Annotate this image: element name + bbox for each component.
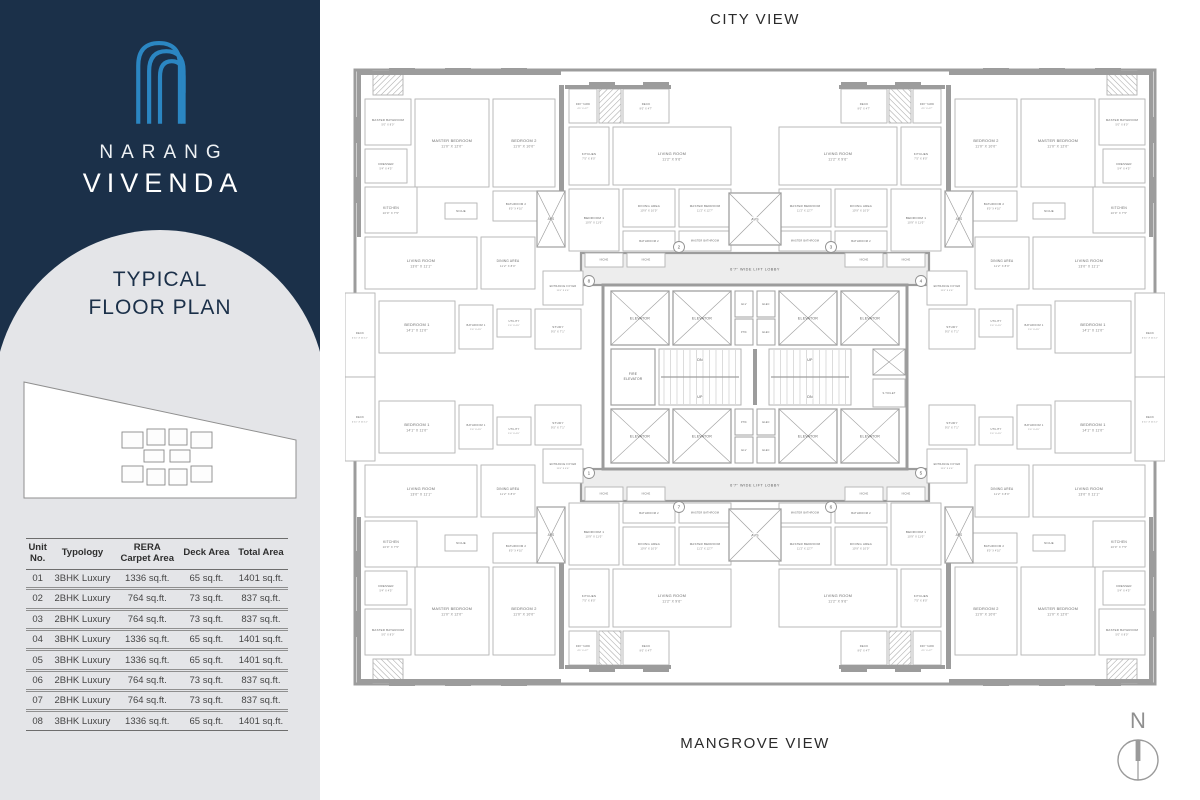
- table-cell: 837 sq.ft.: [234, 589, 288, 609]
- table-cell: 1401 sq.ft.: [234, 629, 288, 649]
- fire-elevator-label: FIRE: [629, 372, 638, 376]
- room-dims: 5'0" X 4'0": [1028, 429, 1040, 431]
- room-label: BEDROOM 1: [906, 530, 926, 534]
- room-dims: 11'0" X 4'6": [941, 468, 954, 470]
- room-label: MASTER BEDROOM: [790, 542, 821, 546]
- room-label: BATHROOM 2: [851, 239, 871, 243]
- wall: [354, 611, 361, 637]
- room-dims: 11'2" X 9'6": [828, 158, 848, 162]
- table-cell: 1401 sq.ft.: [234, 569, 288, 588]
- room-dims: 11'2" X 9'6": [828, 600, 848, 604]
- lift-lobby-label: 6'7" WIDE LIFT LOBBY: [730, 483, 780, 487]
- unit-number: 2: [678, 245, 681, 250]
- room-label: UTILITY: [990, 427, 1001, 431]
- room-dims: 11'2" X 8'0": [500, 264, 516, 268]
- stair-direction: DN: [697, 358, 703, 362]
- table-row: 062BHK Luxury764 sq.ft.73 sq.ft.837 sq.f…: [26, 670, 288, 690]
- wall: [354, 117, 361, 143]
- room-dims: 10'9" X 10'0": [640, 209, 657, 213]
- wall: [983, 679, 1009, 686]
- table-cell: 2BHK Luxury: [49, 691, 115, 711]
- room-dims: 9'5" X 7'1": [945, 330, 959, 334]
- room-label: DINING AREA: [991, 259, 1014, 263]
- room-dims: 8'0" X 4'7": [858, 108, 871, 110]
- room-label: BATHROOM 2: [506, 544, 527, 548]
- room-label: BATHROOM 2: [984, 202, 1005, 206]
- room-label: DINING AREA: [991, 487, 1014, 491]
- stair-direction: DN: [807, 395, 813, 399]
- shaft-label: ELV: [741, 449, 746, 452]
- elevator-label: ELEVATOR: [630, 316, 650, 320]
- room-dims: 5'0" X 8'0": [381, 634, 394, 637]
- room-label: KITCHEN: [582, 594, 597, 598]
- page: NARANG VIVENDA TYPICAL FLOOR PLAN: [0, 0, 1200, 800]
- room-dims: 5'4" X 4'5": [379, 590, 392, 593]
- avs-label: AVS: [751, 217, 759, 221]
- room-label: DECK: [642, 102, 651, 106]
- room-label: DINING AREA: [850, 204, 873, 208]
- table-cell: 3BHK Luxury: [49, 629, 115, 649]
- room-label: MASTER BATHROOM: [1106, 118, 1139, 122]
- wall: [589, 82, 615, 89]
- unit-number: 4: [920, 279, 923, 284]
- room-label: NICHE: [600, 259, 609, 262]
- table-cell: 1336 sq.ft.: [116, 569, 179, 588]
- wall: [445, 679, 471, 686]
- room-label: NICHE: [1044, 209, 1054, 213]
- room-label: ENTRANCE FOYER: [934, 284, 961, 288]
- elevator-label: ELEVATOR: [860, 434, 880, 438]
- table-cell: 65 sq.ft.: [179, 650, 234, 670]
- table-row: 022BHK Luxury764 sq.ft.73 sq.ft.837 sq.f…: [26, 589, 288, 609]
- wall: [895, 82, 921, 89]
- room-label: DINING AREA: [638, 204, 661, 208]
- wall: [895, 665, 921, 672]
- room-label: KITCHEN: [383, 206, 399, 210]
- room-label: MASTER BEDROOM: [690, 542, 721, 546]
- room-label: DRY YARD: [576, 645, 590, 648]
- room-label: LIVING ROOM: [407, 486, 435, 491]
- room-label: AVS: [548, 217, 555, 221]
- room-label: DRY YARD: [920, 103, 934, 106]
- room-dims: 13'0" X 11'1": [1078, 265, 1100, 269]
- table-cell: 837 sq.ft.: [234, 670, 288, 690]
- table-cell: 764 sq.ft.: [116, 589, 179, 609]
- table-cell: 73 sq.ft.: [179, 691, 234, 711]
- room-dims: 11'0" X 4'6": [557, 468, 570, 470]
- room-label: NICHE: [902, 493, 911, 496]
- room-label: NICHE: [642, 493, 651, 496]
- wall: [389, 679, 415, 686]
- room-label: MASTER BATHROOM: [791, 240, 819, 243]
- key-plan: [18, 374, 303, 514]
- room-label: UTILITY: [508, 319, 519, 323]
- room-label: MASTER BEDROOM: [1038, 138, 1078, 143]
- room-dims: 11'2" X 9'6": [662, 600, 682, 604]
- room-label: DINING AREA: [497, 259, 520, 263]
- room-dims: 11'2" X 12'7": [797, 210, 813, 213]
- room-dims: 13'0" X 11'1": [410, 493, 432, 497]
- room-dims: 5'0" X 4'0": [1028, 329, 1040, 331]
- room-dims: 13'0" X 11'1": [1078, 493, 1100, 497]
- wall: [589, 665, 615, 672]
- room-label: AVS: [956, 533, 963, 537]
- room-dims: 4'11" X 11'11": [1142, 421, 1158, 423]
- table-cell: 3BHK Luxury: [49, 650, 115, 670]
- floor-plan-panel: CITY VIEW MASTER BATHROOM5'0" X 8'0"DRES…: [320, 0, 1200, 800]
- table-cell: 764 sq.ft.: [116, 670, 179, 690]
- room-label: LIVING ROOM: [407, 258, 435, 263]
- table-cell: 1336 sq.ft.: [116, 711, 179, 730]
- shaft-label: ELEC: [762, 421, 769, 424]
- north-indicator: N: [1106, 708, 1170, 789]
- room-dims: 8'0" X 4'7": [640, 108, 653, 110]
- room-dims: 10'9" X 11'0": [907, 535, 924, 539]
- wall: [354, 551, 361, 577]
- room-dims: 10'9" X 11'0": [585, 221, 602, 225]
- table-cell: 73 sq.ft.: [179, 589, 234, 609]
- wall: [357, 517, 361, 683]
- shaft-label: PHC: [741, 421, 747, 424]
- room-label: KITCHEN: [1111, 206, 1127, 210]
- table-header-cell: RERACarpet Area: [116, 539, 179, 570]
- wall: [445, 68, 471, 75]
- room-dims: 10'9" X 11'0": [907, 221, 924, 225]
- wall: [946, 85, 951, 191]
- room-dims: 4'5" X 4'7": [577, 108, 588, 110]
- room-dims: 5'4" X 4'5": [1117, 590, 1130, 593]
- wall: [389, 68, 415, 75]
- room-label: DRESSER: [378, 584, 393, 588]
- room-label: DECK: [642, 644, 651, 648]
- room-label: BEDROOM 1: [1080, 422, 1105, 427]
- shaft-label: PHC: [741, 331, 747, 334]
- wall: [643, 82, 669, 89]
- avs-label: AVS: [751, 533, 759, 537]
- room-label: KITCHEN: [914, 152, 929, 156]
- table-row: 032BHK Luxury764 sq.ft.73 sq.ft.837 sq.f…: [26, 609, 288, 629]
- room-label: LIVING ROOM: [658, 151, 686, 156]
- room-label: BATHROOM 1: [1025, 423, 1044, 427]
- wall: [983, 68, 1009, 75]
- room-dims: 11'2" X 12'7": [797, 548, 813, 551]
- room-dims: 11'2" X 9'6": [662, 158, 682, 162]
- brand-name-line2: VIVENDA: [0, 168, 320, 199]
- table-cell: 2BHK Luxury: [49, 670, 115, 690]
- room-dims: 10'0" X 7'5": [1111, 211, 1128, 215]
- room-label: MASTER BEDROOM: [690, 204, 721, 208]
- room-label: LIVING ROOM: [824, 593, 852, 598]
- lift-lobby-label: 6'7" WIDE LIFT LOBBY: [730, 267, 780, 271]
- area-table: UnitNo.TypologyRERACarpet AreaDeck AreaT…: [26, 538, 288, 731]
- stair-direction: UP: [697, 395, 703, 399]
- table-cell: 2BHK Luxury: [49, 589, 115, 609]
- room-label: BEDROOM 1: [1080, 322, 1105, 327]
- unit-number: 6: [830, 505, 833, 510]
- north-arrow-icon: [1114, 734, 1162, 784]
- area-table-head: UnitNo.TypologyRERACarpet AreaDeck AreaT…: [26, 539, 288, 570]
- room-dims: 4'11" X 11'11": [352, 337, 368, 339]
- room-dims: 4'5" X 4'7": [921, 650, 932, 652]
- room-label: DRESSER: [1116, 162, 1131, 166]
- room-label: DINING AREA: [638, 542, 661, 546]
- room-dims: 11'0" X 4'6": [941, 290, 954, 292]
- floor-plan-svg: MASTER BATHROOM5'0" X 8'0"DRESSER5'4" X …: [345, 57, 1165, 699]
- wall: [1095, 679, 1121, 686]
- elevator-label: ELEVATOR: [860, 316, 880, 320]
- room-label: STUDY: [946, 325, 958, 329]
- shaft-label: ELEC: [762, 449, 769, 452]
- table-header-cell: Total Area: [234, 539, 288, 570]
- unit-number: 7: [678, 505, 681, 510]
- table-header-cell: Typology: [49, 539, 115, 570]
- wall: [1039, 679, 1065, 686]
- room-label: STUDY: [946, 421, 958, 425]
- table-cell: 1401 sq.ft.: [234, 711, 288, 730]
- room-dims: 8'0" X 4'10": [987, 550, 1001, 552]
- room-label: KITCHEN: [1111, 540, 1127, 544]
- unit-number: 1: [588, 471, 591, 476]
- room-label: BEDROOM 2: [511, 606, 536, 611]
- room-dims: 10'9" X 10'0": [852, 209, 869, 213]
- wall: [501, 679, 527, 686]
- room-label: MASTER BATHROOM: [691, 240, 719, 243]
- room-dims: 8'0" X 4'10": [509, 550, 523, 552]
- room-label: MASTER BATHROOM: [1106, 628, 1139, 632]
- room-dims: 9'5" X 7'1": [551, 426, 565, 430]
- room-label: MASTER BATHROOM: [791, 512, 819, 515]
- wall: [1149, 71, 1153, 237]
- wall: [354, 177, 361, 203]
- room-label: DECK: [1146, 415, 1154, 419]
- room-label: LIVING ROOM: [824, 151, 852, 156]
- room-label: BEDROOM 1: [404, 322, 429, 327]
- room-dims: 5'4" X 4'5": [1117, 168, 1130, 171]
- room-dims: 14'1" X 11'0": [1082, 429, 1104, 433]
- room-label: DINING AREA: [497, 487, 520, 491]
- table-cell: 3BHK Luxury: [49, 569, 115, 588]
- table-cell: 08: [26, 711, 49, 730]
- room-label: ENTRANCE FOYER: [550, 284, 577, 288]
- room-dims: 5'0" X 4'0": [470, 329, 482, 331]
- room-label: BEDROOM 1: [404, 422, 429, 427]
- room-dims: 10'0" X 7'5": [383, 211, 400, 215]
- shaft-label: ELEC: [762, 331, 769, 334]
- arch-panel: TYPICAL FLOOR PLAN: [0, 230, 326, 800]
- elevator-label: ELEVATOR: [692, 434, 712, 438]
- elevator-label: ELEVATOR: [798, 316, 818, 320]
- room-dims: 5'0" X 8'0": [1115, 124, 1128, 127]
- room-dims: 9'5" X 7'1": [551, 330, 565, 334]
- room-label: BATHROOM 2: [851, 511, 871, 515]
- room-label: NICHE: [642, 259, 651, 262]
- room-label: DECK: [860, 644, 869, 648]
- wall: [1039, 68, 1065, 75]
- room-dims: 10'9" X 10'0": [640, 547, 657, 551]
- table-header-cell: UnitNo.: [26, 539, 49, 570]
- room-dims: 5'0" X 4'0": [470, 429, 482, 431]
- room-dims: 13'0" X 11'1": [410, 265, 432, 269]
- room-dims: 14'1" X 11'0": [406, 329, 428, 333]
- room-dims: 7'5" X 8'0": [582, 600, 596, 603]
- room-dims: 8'0" X 4'10": [987, 208, 1001, 210]
- wall: [841, 82, 867, 89]
- room-label: UTILITY: [508, 427, 519, 431]
- room-label: MASTER BATHROOM: [372, 628, 405, 632]
- room-label: MASTER BEDROOM: [432, 138, 472, 143]
- room-dims: 11'0" X 12'0": [441, 145, 463, 149]
- room-dims: 5'0" X 4'0": [990, 325, 1002, 327]
- room-label: STUDY: [552, 325, 564, 329]
- room-label: STUDY: [552, 421, 564, 425]
- arch-logo-icon: [131, 36, 189, 128]
- table-cell: 65 sq.ft.: [179, 711, 234, 730]
- room-label: MASTER BATHROOM: [691, 512, 719, 515]
- room-label: NICHE: [860, 493, 869, 496]
- brand-name-line1: NARANG: [0, 142, 320, 164]
- table-cell: 73 sq.ft.: [179, 670, 234, 690]
- room-dims: 4'11" X 11'11": [1142, 337, 1158, 339]
- room-label: DRY YARD: [576, 103, 590, 106]
- table-row: 043BHK Luxury1336 sq.ft.65 sq.ft.1401 sq…: [26, 629, 288, 649]
- table-cell: 01: [26, 569, 49, 588]
- room-label: MASTER BEDROOM: [790, 204, 821, 208]
- brand-block: NARANG VIVENDA: [0, 36, 320, 199]
- table-cell: 07: [26, 691, 49, 711]
- floor-plan: MASTER BATHROOM5'0" X 8'0"DRESSER5'4" X …: [345, 57, 1165, 699]
- room-dims: 11'0" X 10'0": [513, 145, 535, 149]
- north-label: N: [1106, 708, 1170, 734]
- wall: [559, 85, 564, 191]
- table-cell: 65 sq.ft.: [179, 569, 234, 588]
- room-label: LIVING ROOM: [658, 593, 686, 598]
- room-label: AVS: [548, 533, 555, 537]
- wall: [1149, 517, 1153, 683]
- room-dims: 11'0" X 10'0": [513, 613, 535, 617]
- room-dims: 11'0" X 4'6": [557, 290, 570, 292]
- table-cell: 1336 sq.ft.: [116, 629, 179, 649]
- table-cell: 73 sq.ft.: [179, 609, 234, 629]
- room-label: AVS: [956, 217, 963, 221]
- room-label: DRY YARD: [920, 645, 934, 648]
- table-row: 083BHK Luxury1336 sq.ft.65 sq.ft.1401 sq…: [26, 711, 288, 730]
- wall: [1149, 177, 1156, 203]
- room-label: UTILITY: [990, 319, 1001, 323]
- table-cell: 65 sq.ft.: [179, 629, 234, 649]
- service-shaft: [599, 631, 621, 665]
- room-dims: 5'0" X 8'0": [381, 124, 394, 127]
- room-label: BATHROOM 1: [1025, 323, 1044, 327]
- room-dims: 8'0" X 4'7": [640, 650, 653, 652]
- room-label: BEDROOM 1: [584, 530, 604, 534]
- room-label: BEDROOM 2: [511, 138, 536, 143]
- unit-number: 3: [830, 245, 833, 250]
- page-title: TYPICAL FLOOR PLAN: [0, 266, 326, 323]
- room-dims: 5'0" X 4'0": [508, 433, 520, 435]
- elevator-label: ELEVATOR: [798, 434, 818, 438]
- room-label: DECK: [356, 415, 364, 419]
- table-cell: 1401 sq.ft.: [234, 650, 288, 670]
- room-dims: 11'0" X 12'0": [1047, 613, 1069, 617]
- unit-number: 5: [920, 471, 923, 476]
- table-cell: 764 sq.ft.: [116, 691, 179, 711]
- staff-toilet-label: S.TOILET: [882, 391, 895, 395]
- room-label: NICHE: [1044, 541, 1054, 545]
- room-dims: 11'0" X 10'0": [975, 613, 997, 617]
- wall: [501, 68, 527, 75]
- table-cell: 05: [26, 650, 49, 670]
- room-dims: 7'5" X 8'0": [914, 158, 928, 161]
- room-dims: 5'0" X 8'0": [1115, 634, 1128, 637]
- room-dims: 11'2" X 12'7": [697, 210, 713, 213]
- wall: [357, 71, 361, 237]
- room-dims: 9'5" X 7'1": [945, 426, 959, 430]
- table-row: 013BHK Luxury1336 sq.ft.65 sq.ft.1401 sq…: [26, 569, 288, 588]
- room-label: NICHE: [456, 209, 466, 213]
- room-label: DECK: [356, 331, 364, 335]
- table-cell: 837 sq.ft.: [234, 691, 288, 711]
- room-dims: 10'9" X 11'0": [585, 535, 602, 539]
- room-label: ENTRANCE FOYER: [550, 462, 577, 466]
- table-cell: 764 sq.ft.: [116, 609, 179, 629]
- room-label: BATHROOM 1: [467, 423, 486, 427]
- room-dims: 11'2" X 12'7": [697, 548, 713, 551]
- room-dims: 11'0" X 10'0": [975, 145, 997, 149]
- room-dims: 10'0" X 7'5": [1111, 545, 1128, 549]
- mangrove-view-label: MANGROVE VIEW: [320, 735, 1190, 752]
- wall: [1149, 551, 1156, 577]
- room-label: DINING AREA: [850, 542, 873, 546]
- room-dims: 11'0" X 12'0": [1047, 145, 1069, 149]
- room-dims: 5'0" X 4'0": [508, 325, 520, 327]
- room-dims: 10'0" X 7'5": [383, 545, 400, 549]
- room-label: MASTER BEDROOM: [432, 606, 472, 611]
- table-cell: 03: [26, 609, 49, 629]
- sidebar: NARANG VIVENDA TYPICAL FLOOR PLAN: [0, 0, 320, 800]
- room-label: NICHE: [456, 541, 466, 545]
- table-cell: 3BHK Luxury: [49, 711, 115, 730]
- wall: [841, 665, 867, 672]
- page-title-line2: FLOOR PLAN: [88, 296, 231, 319]
- room-dims: 11'0" X 12'0": [441, 613, 463, 617]
- room-label: MASTER BATHROOM: [372, 118, 405, 122]
- room-label: LIVING ROOM: [1075, 486, 1103, 491]
- wall: [559, 563, 564, 669]
- room-label: BATHROOM 2: [639, 511, 659, 515]
- table-cell: 06: [26, 670, 49, 690]
- room-label: NICHE: [600, 493, 609, 496]
- wall: [643, 665, 669, 672]
- room-label: BEDROOM 1: [906, 216, 926, 220]
- room-dims: 4'11" X 11'11": [352, 421, 368, 423]
- room-label: DECK: [1146, 331, 1154, 335]
- area-table-body: 013BHK Luxury1336 sq.ft.65 sq.ft.1401 sq…: [26, 569, 288, 730]
- room-label: BEDROOM 2: [973, 606, 998, 611]
- table-cell: 837 sq.ft.: [234, 609, 288, 629]
- room-dims: 4'5" X 4'7": [921, 108, 932, 110]
- table-cell: 1336 sq.ft.: [116, 650, 179, 670]
- room-label: LIVING ROOM: [1075, 258, 1103, 263]
- wall: [946, 563, 951, 669]
- room-dims: 5'4" X 4'5": [379, 168, 392, 171]
- room-dims: 14'1" X 11'0": [1082, 329, 1104, 333]
- core-center-wall: [753, 349, 757, 405]
- room-label: BEDROOM 1: [584, 216, 604, 220]
- table-cell: 02: [26, 589, 49, 609]
- city-view-label: CITY VIEW: [320, 11, 1190, 28]
- table-cell: 04: [26, 629, 49, 649]
- fire-elevator-label: ELEVATOR: [624, 377, 643, 381]
